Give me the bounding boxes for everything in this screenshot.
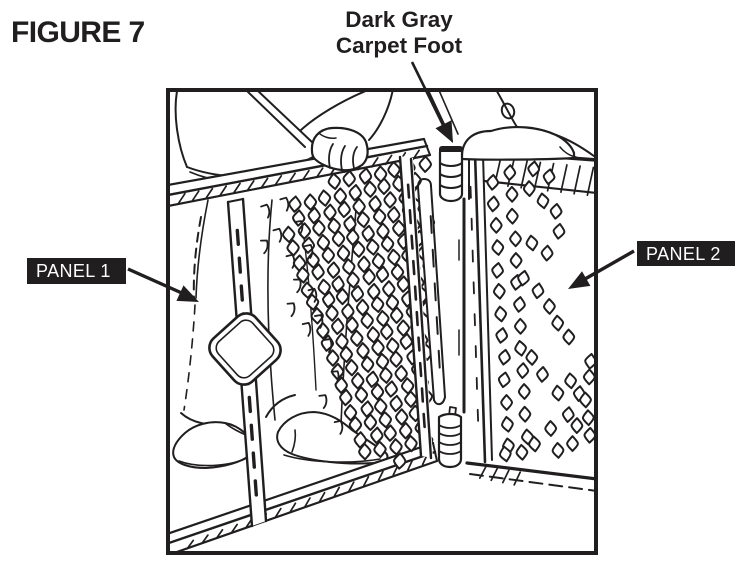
svg-text:FIGURE 7: FIGURE 7	[11, 16, 145, 49]
svg-text:PANEL 2: PANEL 2	[646, 244, 721, 264]
svg-text:Carpet Foot: Carpet Foot	[336, 33, 463, 58]
svg-text:PANEL 1: PANEL 1	[36, 261, 111, 281]
svg-text:Dark Gray: Dark Gray	[345, 7, 453, 32]
